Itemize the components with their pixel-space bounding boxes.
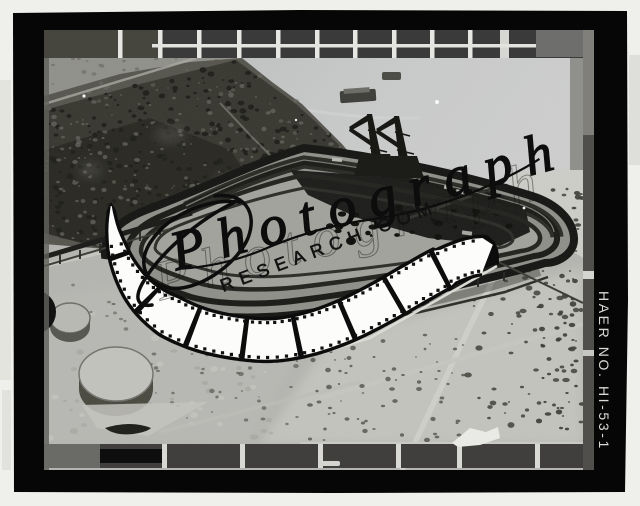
svg-text:HAER NO. HI-53-1: HAER NO. HI-53-1	[596, 291, 612, 451]
